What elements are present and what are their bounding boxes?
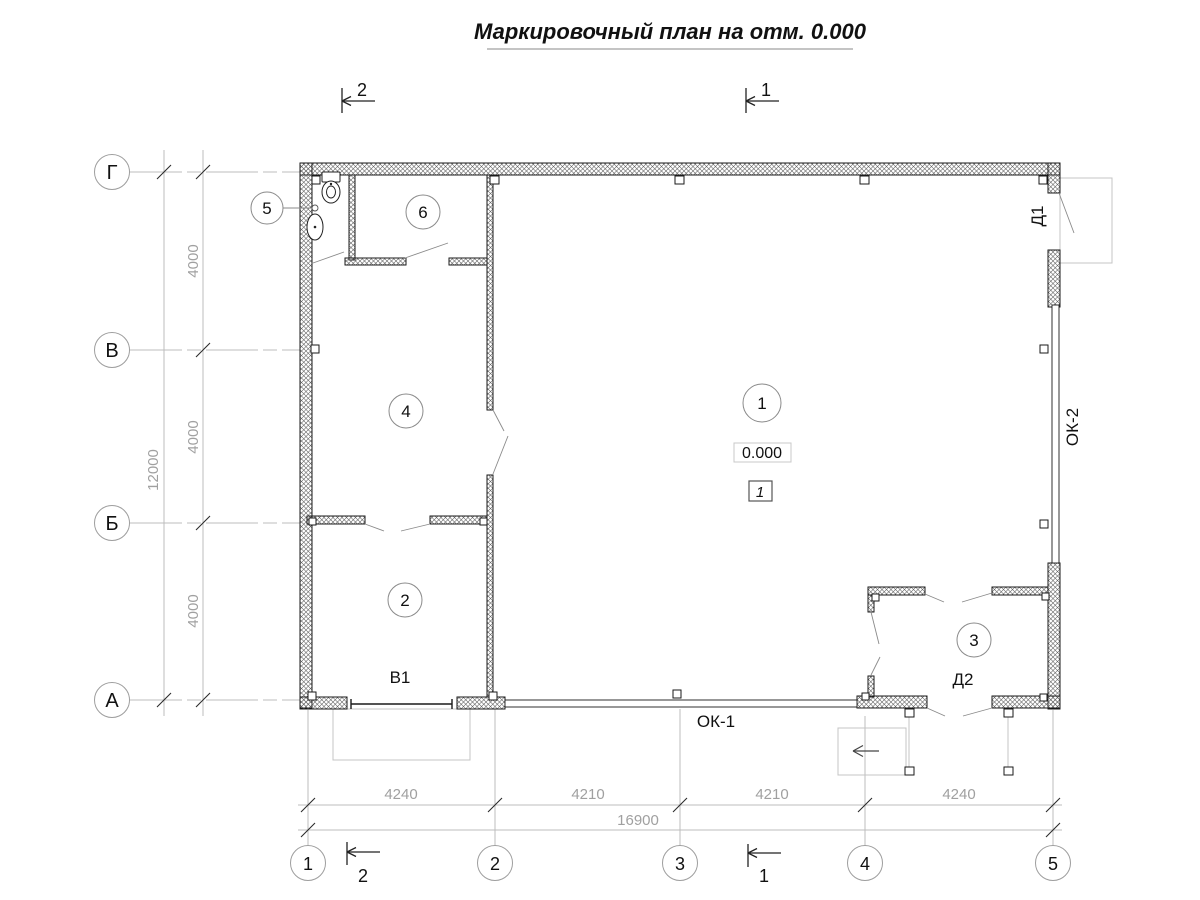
partition-middle-upper [487, 175, 493, 410]
section-1-label-top: 1 [761, 80, 771, 100]
sink-fixture [307, 214, 323, 240]
axis-row-b-label: Б [105, 513, 118, 535]
exterior-structures [333, 178, 1112, 775]
partition-room6-bottom-b [449, 258, 487, 265]
room-1-number: 1 [757, 394, 766, 413]
section-mark-bottom-right: 1 [748, 844, 781, 886]
floor-type-value: 1 [756, 484, 764, 501]
door-swing-mid-lower [493, 436, 508, 474]
toilet-detail-dot [330, 183, 332, 185]
room-2-number: 2 [400, 591, 409, 610]
dim-left-segment-3: 4000 [185, 594, 202, 627]
section-mark-top-right: 1 [746, 80, 779, 113]
axis-row-v-label: В [105, 340, 118, 362]
wall-bottom-4 [992, 696, 1060, 708]
axis-col-1-label: 1 [303, 854, 313, 874]
window-ok1-band [505, 700, 857, 707]
dim-bottom-total: 16900 [617, 812, 659, 829]
exterior-walls [300, 163, 1060, 709]
partition-middle-lower [487, 475, 493, 697]
room-5-leader-dot [312, 205, 318, 211]
axis-col-5-label: 5 [1048, 854, 1058, 874]
porch-top-right [1060, 178, 1112, 263]
partition-axis-b-b [430, 516, 487, 524]
wall-bottom-2 [457, 697, 505, 709]
door-swing-room3-left-up [871, 612, 879, 644]
door-swing-room3-top-left [925, 594, 944, 602]
column-markers [308, 176, 1049, 775]
page-title: Маркировочный план на отм. 0.000 [474, 19, 867, 44]
dim-left-segment-2: 4000 [185, 420, 202, 453]
wall-left [300, 163, 312, 708]
dim-left-segment-1: 4000 [185, 244, 202, 277]
dim-left-total: 12000 [145, 449, 162, 491]
partition-room3-top-b [992, 587, 1048, 595]
window-ok1-label: ОК-1 [697, 712, 735, 731]
dim-bottom-segment-1: 4240 [384, 786, 417, 803]
axis-row-g-label: Г [107, 162, 118, 184]
axis-bubbles-bottom: 1 2 3 4 5 [291, 846, 1071, 881]
floor-plan-drawing: Маркировочный план на отм. 0.000 [0, 0, 1200, 900]
door-swing-mid-upper [493, 410, 504, 431]
section-2-label-top: 2 [357, 80, 367, 100]
door-swing-room3-top-right [962, 593, 992, 602]
dim-bottom-segment-3: 4210 [755, 786, 788, 803]
section-2-label-bottom: 2 [358, 866, 368, 886]
gate-v1-label: В1 [390, 668, 411, 687]
axis-col-3-label: 3 [675, 854, 685, 874]
axis-col-4-label: 4 [860, 854, 870, 874]
room-4-number: 4 [401, 402, 410, 421]
window-ok2-band [1052, 305, 1059, 563]
sink-drain-dot [314, 226, 317, 229]
apron-bottom-left [333, 709, 470, 760]
axis-row-a-label: А [105, 690, 119, 712]
axis-lines [130, 150, 1062, 845]
axis-col-2-label: 2 [490, 854, 500, 874]
window-ok2-label: ОК-2 [1063, 408, 1082, 446]
door-swing-d1 [1059, 193, 1074, 233]
wall-right-bottom [1048, 563, 1060, 709]
room-6-number: 6 [418, 203, 427, 222]
door-swing-room5 [313, 252, 344, 263]
room-3-number: 3 [969, 631, 978, 650]
partition-room6-bottom-a [345, 258, 406, 265]
elevation-mark: 0.000 [734, 443, 791, 462]
elevation-value: 0.000 [742, 445, 782, 462]
drawing-page: Маркировочный план на отм. 0.000 [0, 0, 1200, 900]
dimension-ticks [157, 165, 1060, 837]
drawing-title: Маркировочный план на отм. 0.000 [474, 19, 867, 49]
axis-bubbles-left: Г В Б А [95, 155, 130, 718]
section-mark-top-left: 2 [342, 80, 375, 113]
dimension-texts: 4000 4000 4000 12000 4240 4210 4210 4240… [145, 244, 976, 829]
dim-bottom-segment-4: 4240 [942, 786, 975, 803]
dim-bottom-segment-2: 4210 [571, 786, 604, 803]
door-d2-label: Д2 [953, 670, 974, 689]
door-swing-room6 [405, 243, 448, 258]
partition-room5-room6 [349, 175, 355, 260]
gate-v1-symbol [351, 699, 452, 709]
door-swing-axis-b-left [365, 524, 384, 531]
door-swing-axis-b-right [401, 524, 430, 531]
room-5-number: 5 [262, 199, 271, 218]
section-mark-bottom-left: 2 [347, 842, 380, 886]
wall-right-top [1048, 163, 1060, 193]
door-swing-room3-left-down [871, 657, 880, 675]
section-1-label-bottom: 1 [759, 866, 769, 886]
ramp-direction-arrow [853, 746, 879, 757]
door-d1-label: Д1 [1028, 206, 1047, 227]
wall-bottom-1 [300, 697, 347, 709]
toilet-fixture [322, 172, 340, 203]
wall-right-mid [1048, 250, 1060, 307]
door-swing-room3-bottom-left [927, 708, 945, 716]
wall-top [300, 163, 1060, 175]
door-swing-room3-bottom-right [963, 708, 992, 716]
toilet-bowl-inner [327, 186, 336, 198]
floor-type-mark: 1 [749, 481, 772, 501]
